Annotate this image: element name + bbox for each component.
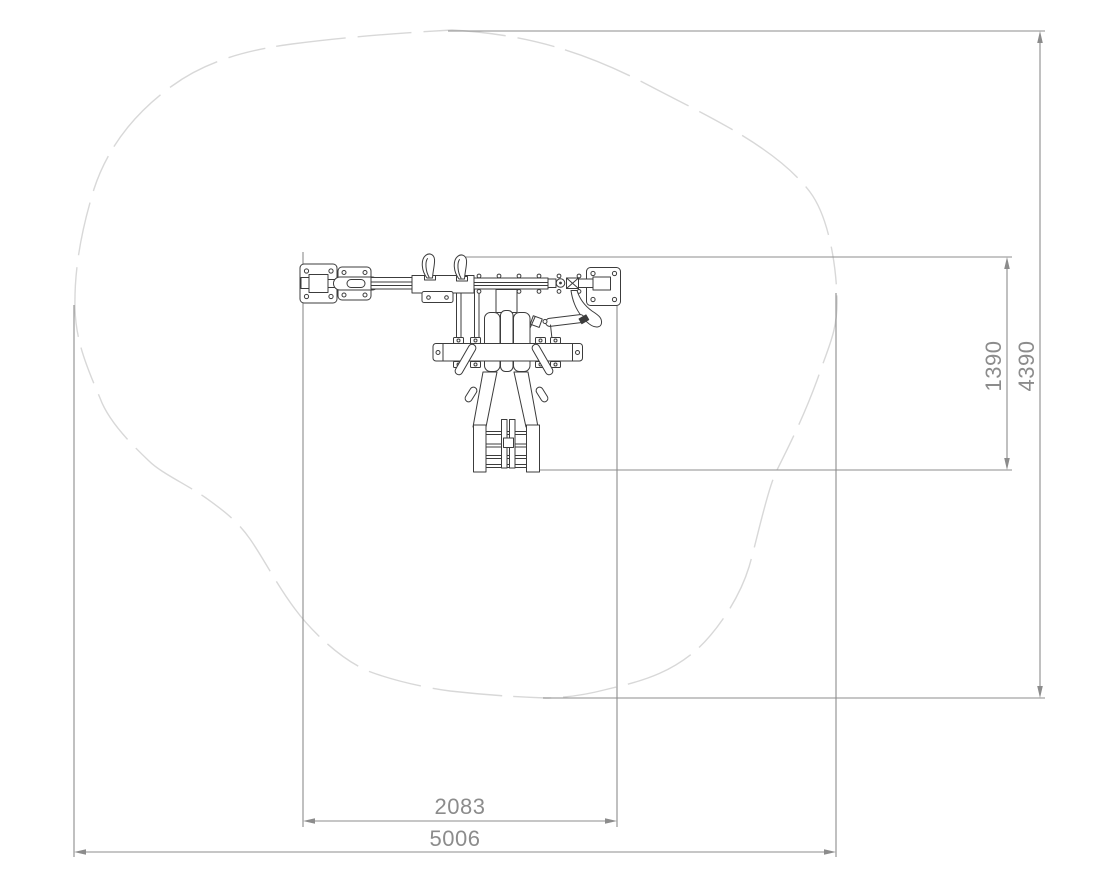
hand-hook [454, 255, 467, 281]
arrowhead-right [605, 818, 617, 824]
frame-legs [464, 372, 549, 427]
dimension-overall-width: 5006 [74, 293, 836, 857]
drawing-page: 4390 1390 2083 5006 [0, 0, 1110, 879]
beam-joint [548, 279, 556, 288]
arrowhead-down [1037, 686, 1043, 698]
ladder-post [527, 425, 540, 472]
hand-hook [422, 254, 435, 280]
seat-pads [485, 311, 531, 372]
technical-drawing-canvas: 4390 1390 2083 5006 [0, 0, 1110, 879]
dimension-label-equipment-depth: 1390 [981, 341, 1006, 392]
arrowhead-down [1004, 458, 1010, 470]
equipment-plan-view [300, 254, 621, 472]
foot-knob [535, 386, 549, 403]
dimension-label-overall-depth: 4390 [1014, 341, 1039, 392]
beam-end-block [593, 277, 611, 290]
arrowhead-right [824, 849, 836, 855]
support-column [496, 290, 517, 313]
ladder-post [474, 425, 487, 472]
foot-knob [464, 386, 478, 403]
arrowhead-left [74, 849, 86, 855]
arrowhead-up [1037, 31, 1043, 43]
dimension-label-equipment-width: 2083 [435, 794, 486, 819]
arrowhead-left [303, 818, 315, 824]
ladder-rails [474, 420, 540, 473]
arrowhead-up [1004, 257, 1010, 269]
rail-connector [504, 438, 514, 448]
dimension-label-overall-width: 5006 [430, 826, 481, 851]
